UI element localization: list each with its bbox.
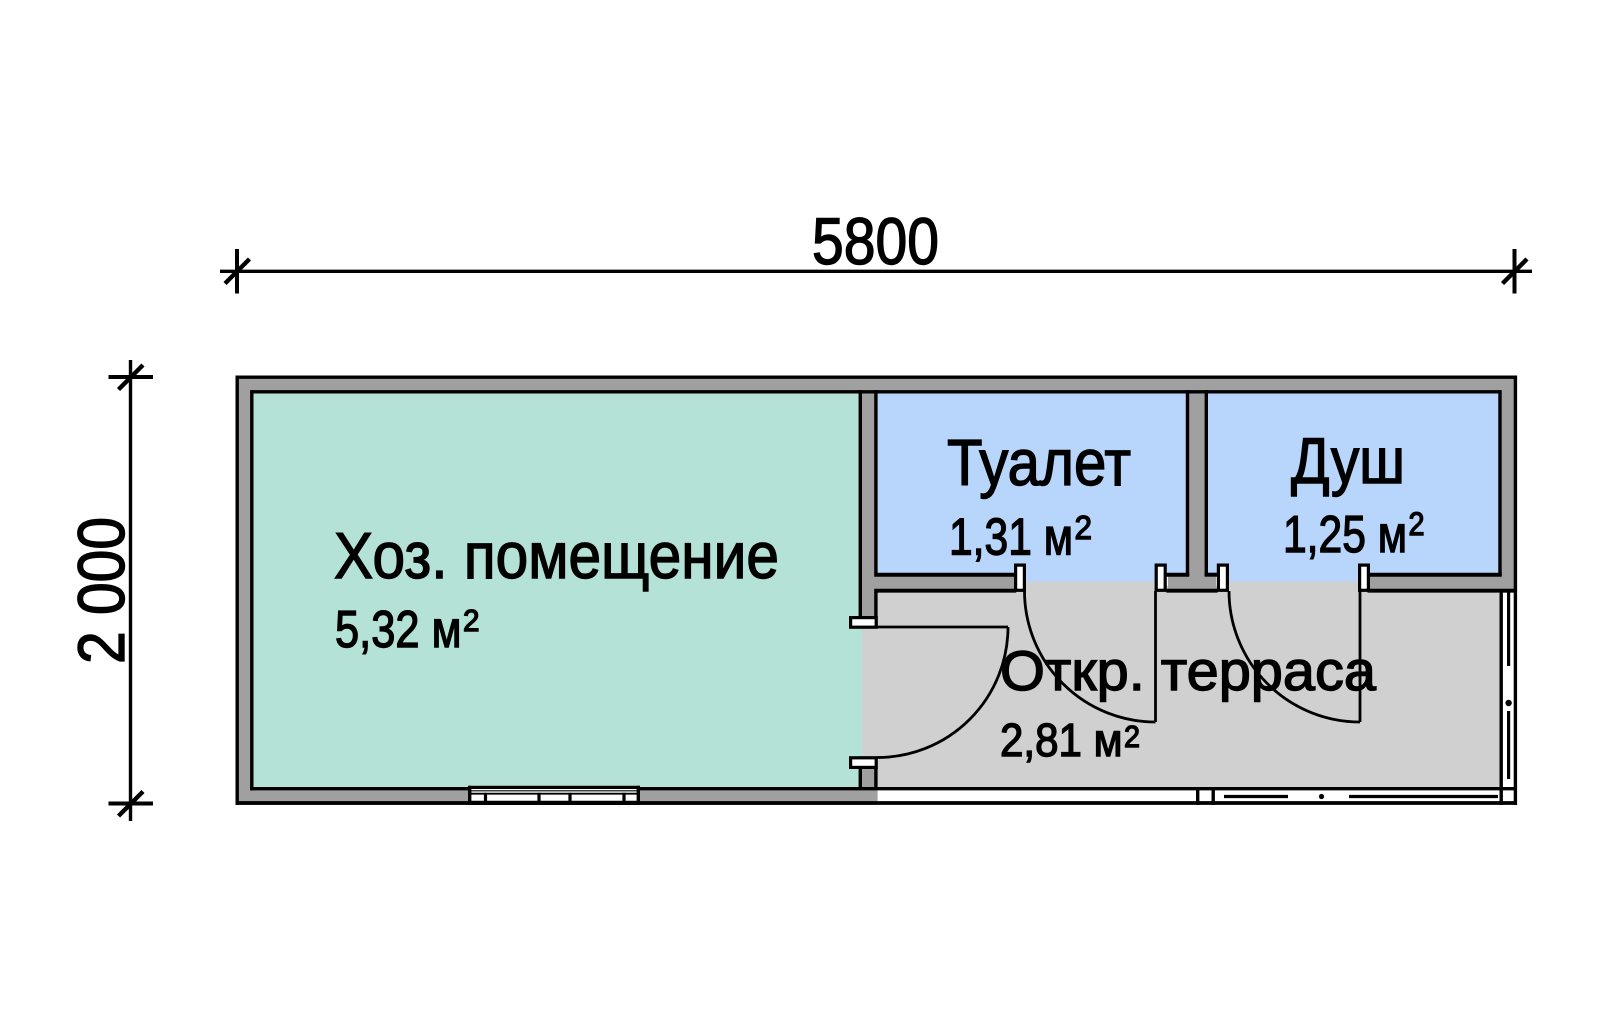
svg-text:2 000: 2 000 (64, 517, 138, 664)
svg-text:1,31 м: 1,31 м (949, 509, 1073, 567)
svg-text:2: 2 (1409, 506, 1425, 542)
svg-text:5800: 5800 (812, 204, 939, 278)
svg-text:5,32 м: 5,32 м (335, 601, 462, 659)
svg-text:Хоз. помещение: Хоз. помещение (334, 519, 779, 592)
svg-text:Туалет: Туалет (947, 426, 1131, 499)
svg-text:Душ: Душ (1291, 424, 1405, 497)
svg-text:Откр. терраса: Откр. терраса (1000, 639, 1377, 702)
svg-text:1,25 м: 1,25 м (1283, 506, 1407, 564)
svg-text:2,81 м: 2,81 м (1000, 714, 1123, 766)
svg-text:2: 2 (463, 603, 480, 638)
svg-text:2: 2 (1124, 719, 1140, 754)
svg-text:2: 2 (1075, 509, 1093, 546)
